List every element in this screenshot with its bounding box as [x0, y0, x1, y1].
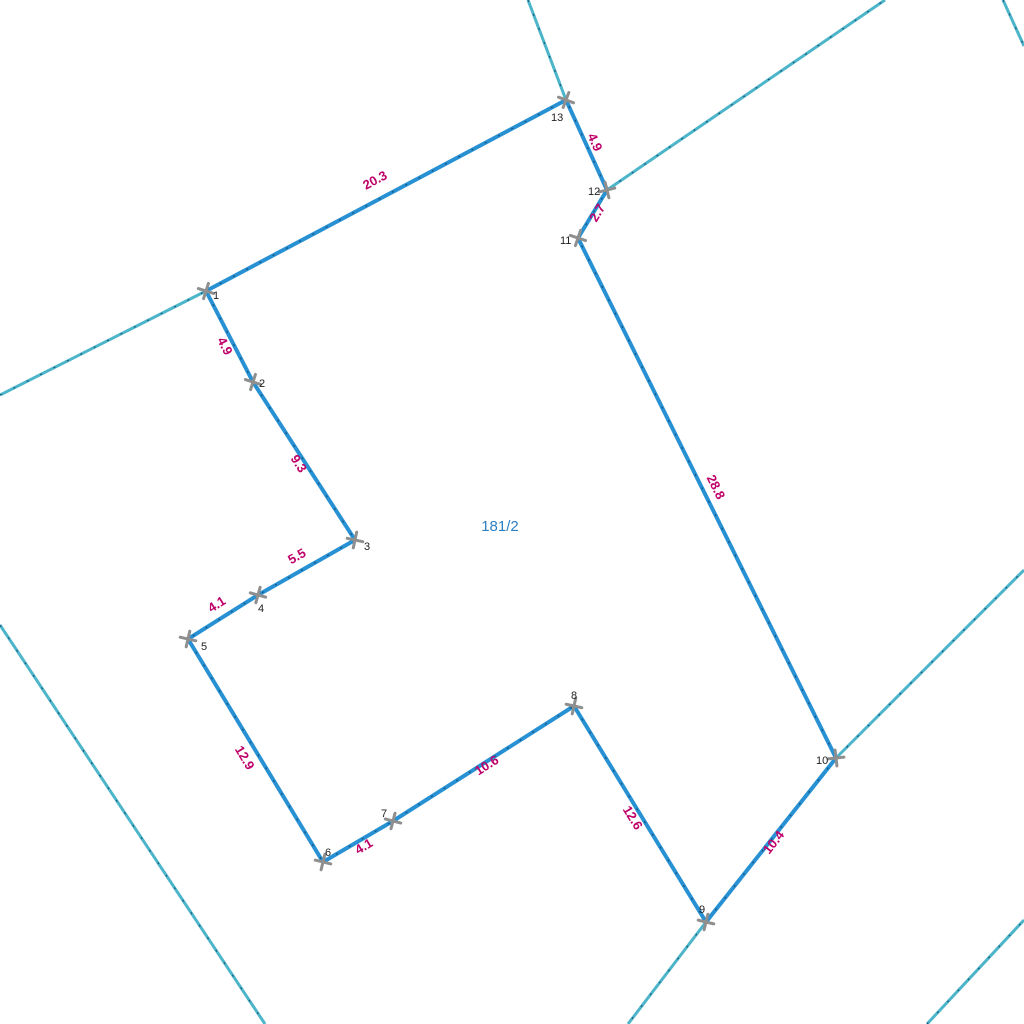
- vertex-marker-icon: [391, 813, 395, 828]
- parcel-edge: [578, 238, 836, 758]
- neighbor-boundary-line: [628, 922, 706, 1024]
- neighbor-boundaries-layer: [0, 0, 1024, 1024]
- vertex-number: 11: [560, 235, 571, 247]
- vertex-markers-layer: [180, 93, 844, 930]
- parcel-edge: [188, 639, 323, 862]
- vertex-number: 9: [699, 904, 705, 916]
- vertex-number: 10: [816, 755, 828, 767]
- neighbor-boundary-line: [0, 625, 265, 1024]
- cadastral-map-canvas[interactable]: 4.99.35.54.112.94.110.612.610.428.82.74.…: [0, 0, 1024, 1024]
- vertex-marker-icon: [256, 587, 260, 602]
- vertex-number: 2: [259, 378, 265, 390]
- vertex-number: 3: [364, 541, 370, 553]
- vertex-number: 5: [201, 641, 207, 653]
- edge-length-label: 9.3: [288, 452, 310, 475]
- vertex-number: 13: [551, 112, 563, 124]
- edge-length-label: 4.1: [205, 593, 228, 615]
- neighbor-boundary-line: [1003, 0, 1024, 46]
- edge-length-label: 20.3: [360, 167, 389, 192]
- map-viewport: 4.99.35.54.112.94.110.612.610.428.82.74.…: [0, 0, 1024, 1024]
- edge-length-label: 4.9: [214, 334, 236, 357]
- edge-length-label: 10.4: [760, 827, 788, 857]
- parcel-number-label: 181/2: [481, 518, 519, 535]
- parcel-edges-layer: [188, 100, 836, 922]
- vertex-number: 7: [381, 808, 387, 820]
- vertex-number: 4: [258, 603, 264, 615]
- vertex-number: 8: [571, 690, 577, 702]
- vertex-marker-icon: [835, 750, 837, 766]
- edge-length-label: 12.6: [620, 803, 646, 832]
- vertex-marker-icon: [698, 920, 714, 924]
- edge-length-label: 4.1: [352, 835, 375, 857]
- vertex-number: 1: [213, 290, 219, 302]
- labels-layer: 4.99.35.54.112.94.110.612.610.428.82.74.…: [201, 112, 828, 916]
- vertex-number: 6: [325, 847, 331, 859]
- edge-length-label: 5.5: [285, 545, 308, 567]
- vertex-number: 12: [588, 186, 600, 198]
